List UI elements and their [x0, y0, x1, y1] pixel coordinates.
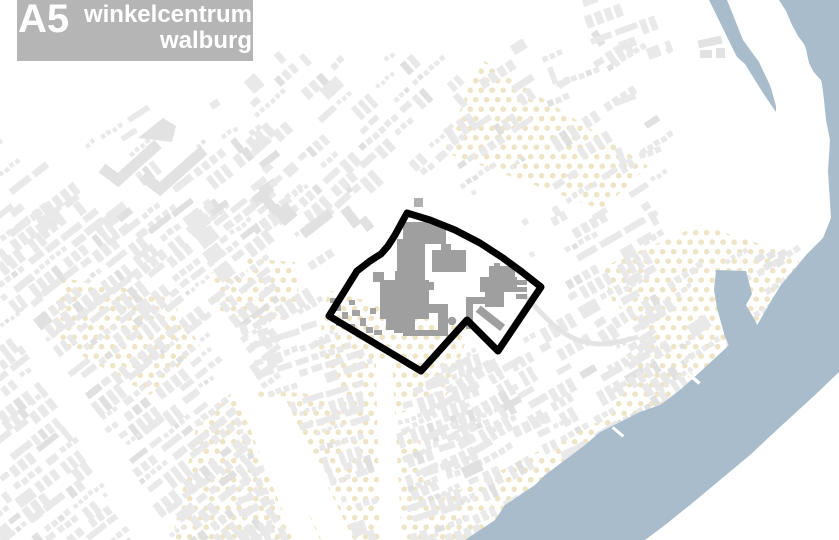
svg-text:A5: A5: [18, 0, 69, 41]
svg-text:winkelcentrum: winkelcentrum: [83, 1, 252, 28]
svg-text:walburg: walburg: [159, 27, 252, 54]
